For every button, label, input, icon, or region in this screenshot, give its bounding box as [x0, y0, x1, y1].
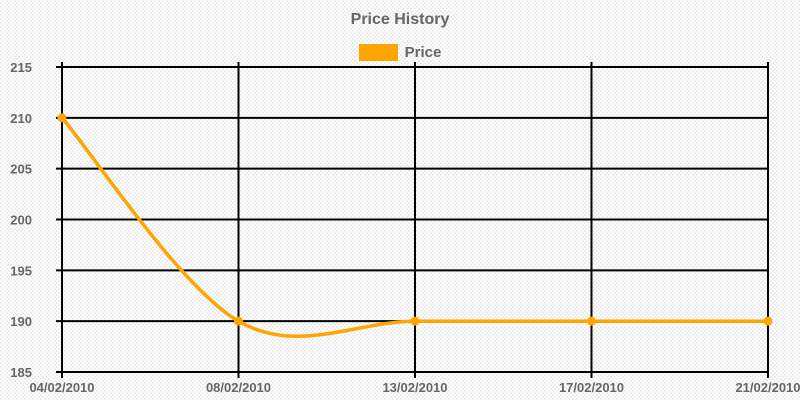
- y-tick-label: 195: [10, 263, 32, 278]
- plot-area: 21521020520019519018504/02/201008/02/201…: [0, 0, 800, 400]
- x-tick-label: 13/02/2010: [382, 380, 447, 395]
- x-tick-label: 17/02/2010: [559, 380, 624, 395]
- y-tick-label: 185: [10, 365, 32, 380]
- data-point-marker[interactable]: [234, 317, 243, 326]
- data-point-marker[interactable]: [764, 317, 773, 326]
- data-point-marker[interactable]: [411, 317, 420, 326]
- y-tick-label: 205: [10, 162, 32, 177]
- y-tick-label: 210: [10, 111, 32, 126]
- x-tick-label: 08/02/2010: [206, 380, 271, 395]
- x-tick-label: 04/02/2010: [29, 380, 94, 395]
- x-tick-label: 21/02/2010: [735, 380, 800, 395]
- y-tick-label: 200: [10, 213, 32, 228]
- data-point-marker[interactable]: [58, 113, 67, 122]
- y-tick-label: 215: [10, 60, 32, 75]
- y-tick-label: 190: [10, 314, 32, 329]
- data-point-marker[interactable]: [587, 317, 596, 326]
